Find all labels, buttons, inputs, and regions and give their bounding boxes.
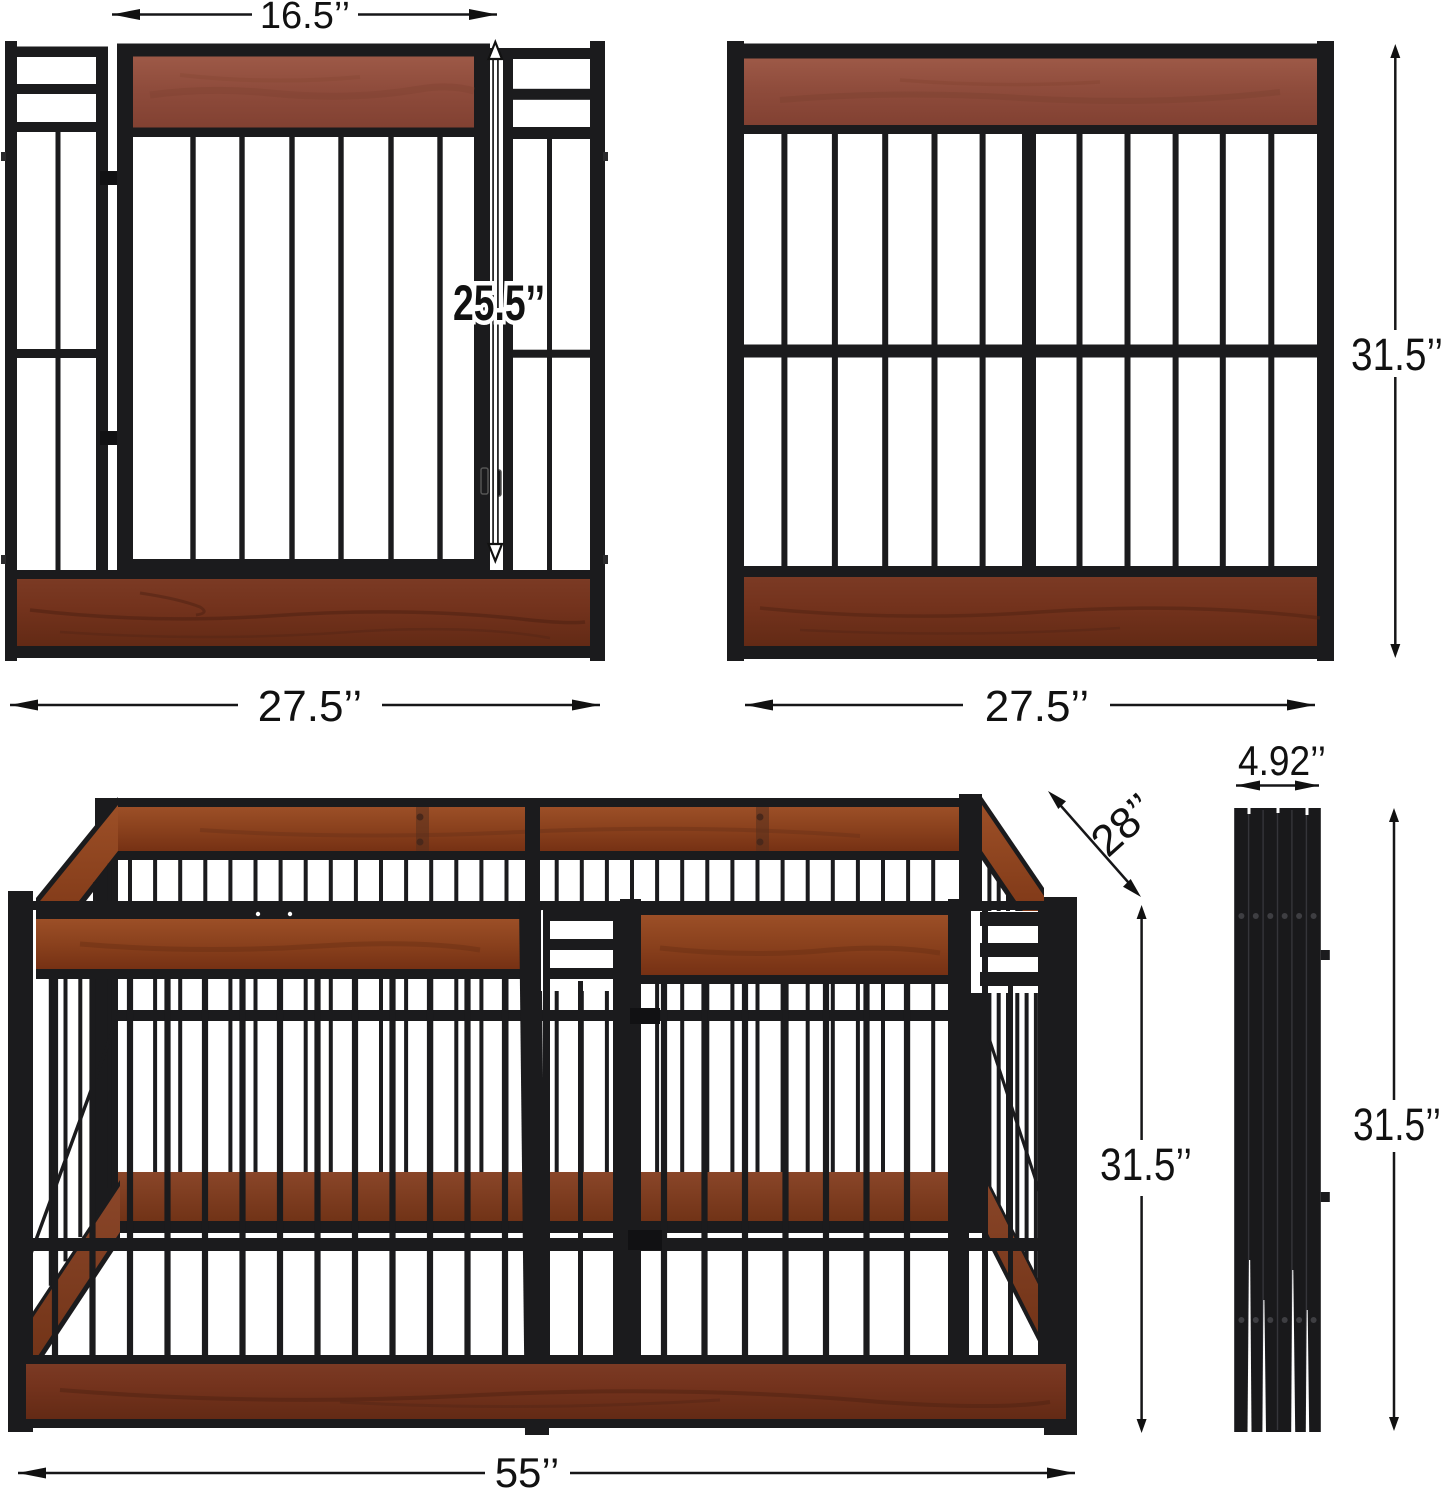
- svg-text:55’’: 55’’: [495, 1449, 560, 1491]
- svg-text:4.92’’: 4.92’’: [1238, 737, 1326, 784]
- svg-text:27.5’’: 27.5’’: [985, 682, 1089, 731]
- svg-text:27.5’’: 27.5’’: [258, 682, 362, 731]
- svg-text:25.5’’: 25.5’’: [453, 275, 545, 331]
- svg-text:31.5’’: 31.5’’: [1100, 1139, 1192, 1190]
- svg-text:31.5’’: 31.5’’: [1351, 329, 1443, 380]
- svg-text:16.5’’: 16.5’’: [260, 0, 350, 37]
- svg-text:31.5’’: 31.5’’: [1353, 1099, 1441, 1150]
